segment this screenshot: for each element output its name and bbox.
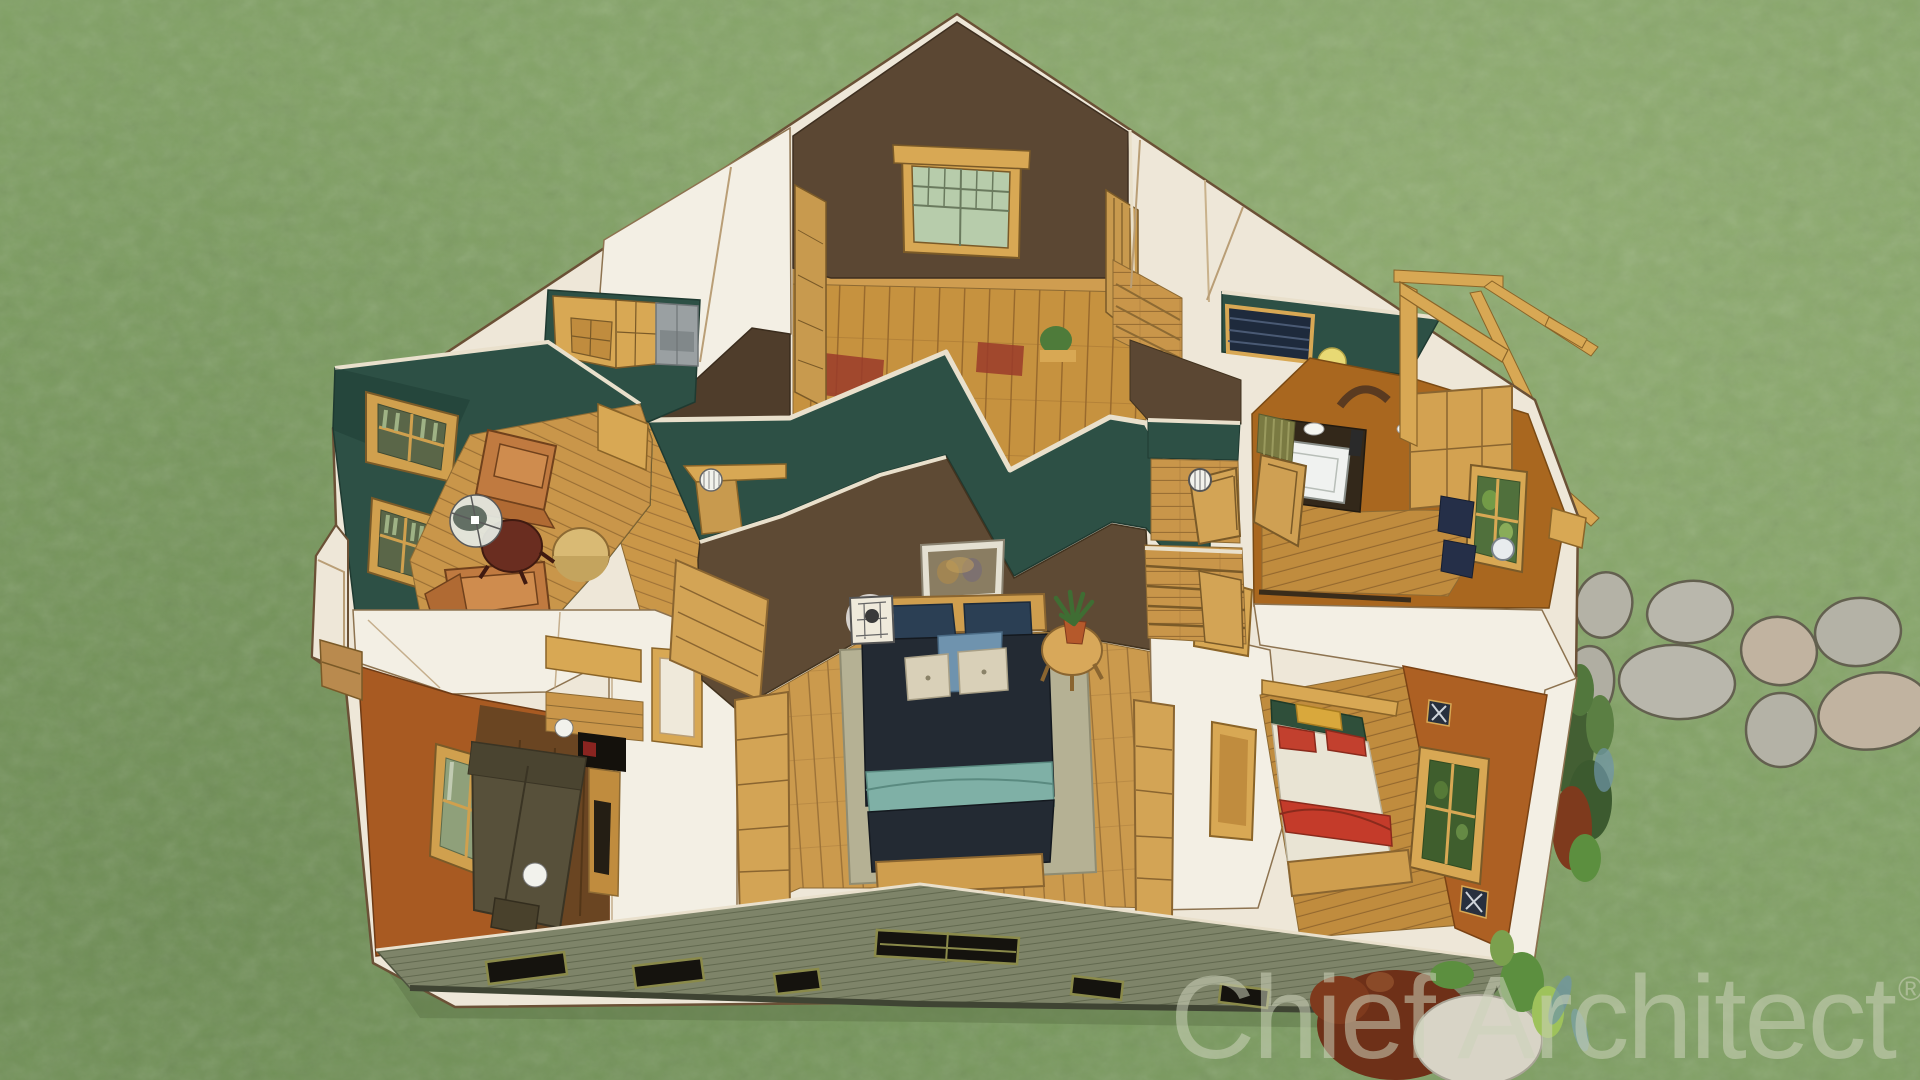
svg-text:®: ® (1898, 970, 1920, 1008)
svg-text:Chief Architect: Chief Architect (1170, 952, 1897, 1080)
